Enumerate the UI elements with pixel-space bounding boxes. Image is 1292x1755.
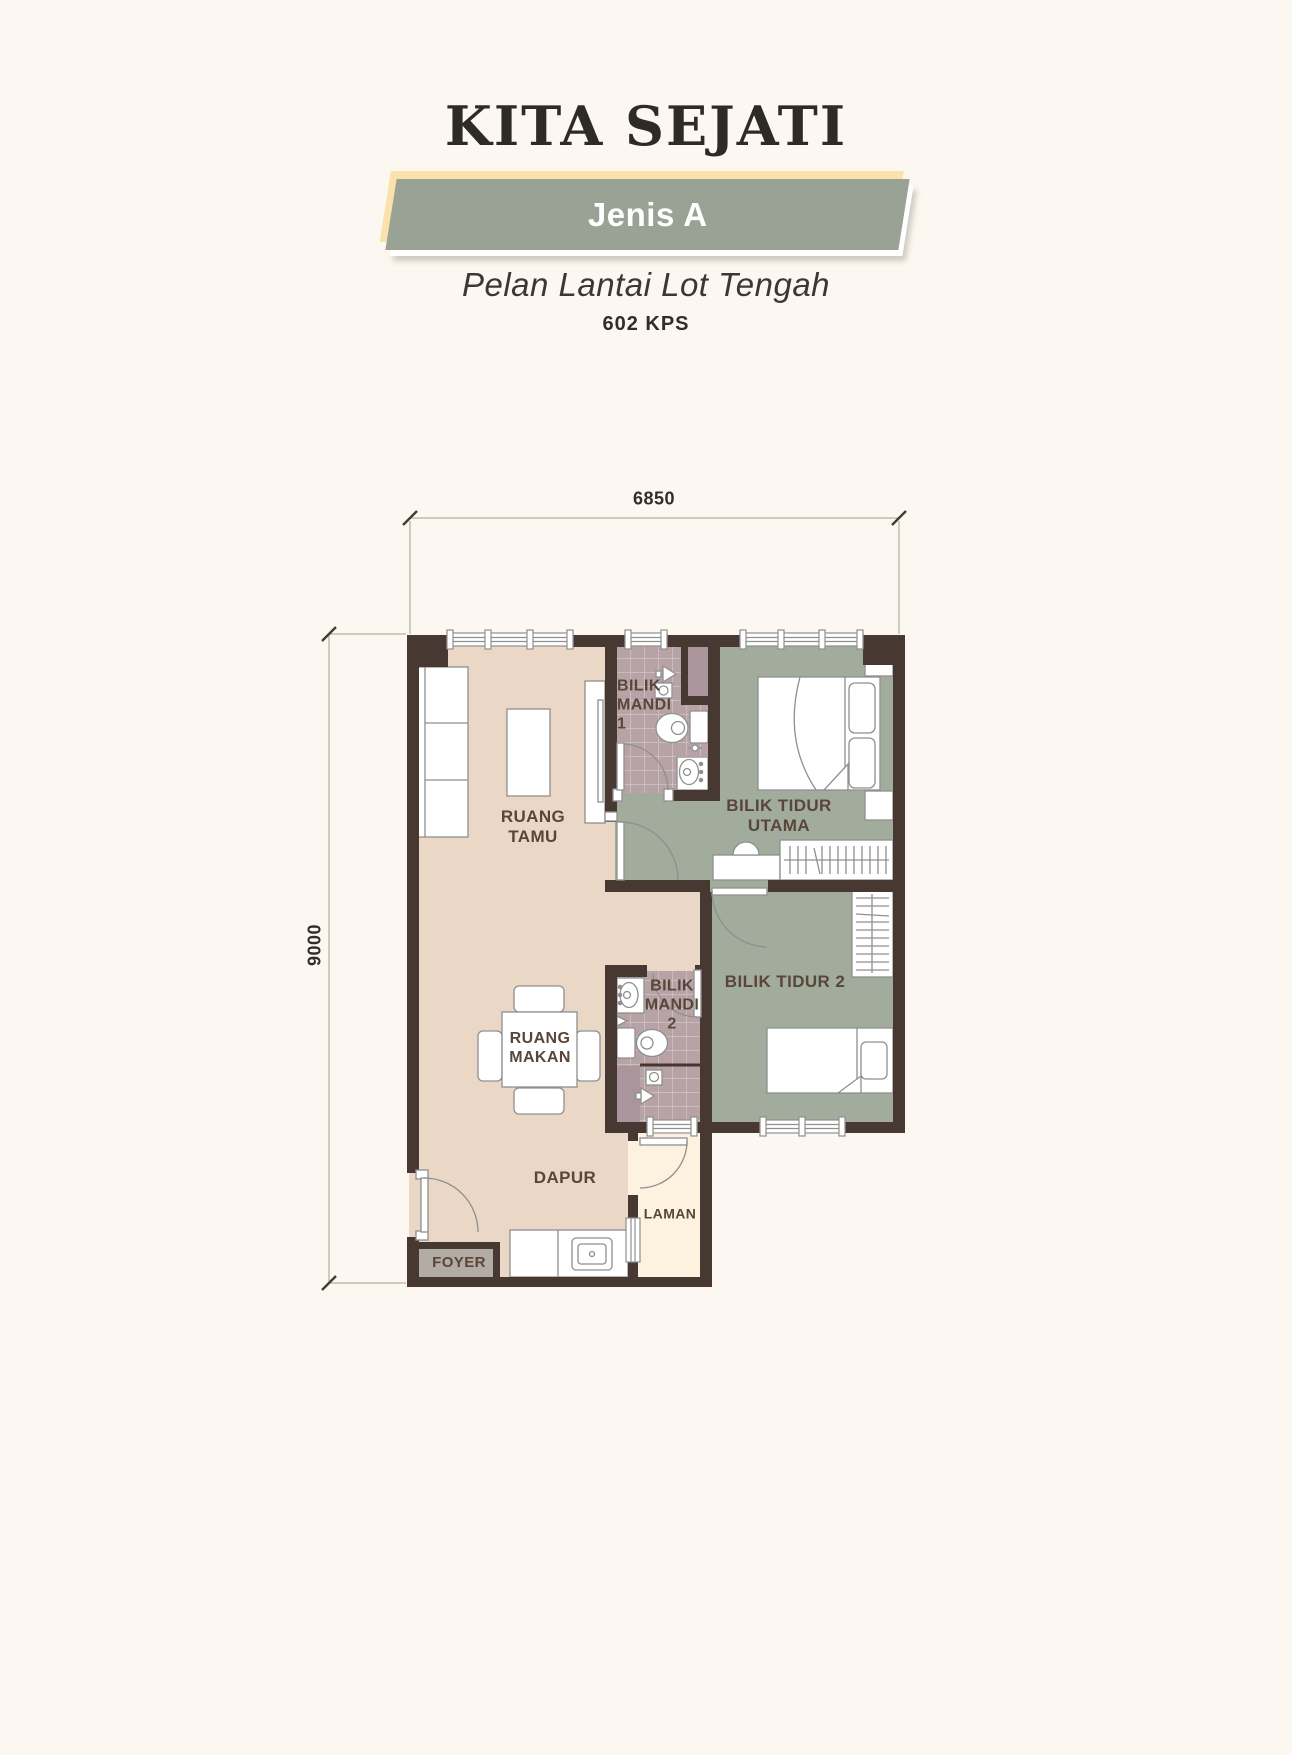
pillow (849, 738, 875, 788)
wall-bed2-left (700, 892, 712, 1287)
window-master (740, 633, 863, 646)
door-leaf-master (617, 822, 624, 880)
wall-laman-left (628, 1133, 638, 1141)
floor-laman-threshold (628, 1141, 638, 1195)
window-mullion (661, 630, 667, 649)
door-leaf-entrance (421, 1178, 428, 1232)
floor-plan (0, 0, 1292, 1755)
sink-drain-icon (684, 769, 691, 776)
window-mullion (485, 630, 491, 649)
dining-chair-top (514, 986, 564, 1012)
toilet-flush2-circle (641, 1037, 653, 1049)
window-mullion (799, 1117, 805, 1136)
toilet-flush-circle (672, 722, 685, 735)
dining-chair-right (576, 1031, 600, 1081)
door-leaf-bath1 (617, 743, 624, 790)
toilet-cistern (690, 711, 708, 743)
window-mullion (447, 630, 453, 649)
window-kitchen-laman (626, 1218, 640, 1262)
dimension-height: 9000 (305, 924, 326, 966)
label-foyer: FOYER (432, 1254, 486, 1272)
window-mullion (778, 630, 784, 649)
dining-chair-bottom (514, 1088, 564, 1114)
window-mullion (647, 1117, 653, 1136)
label-bilik-mandi-1: BILIK MANDI 1 (617, 678, 671, 735)
bidet-spray-icon (692, 745, 698, 751)
window-mullion (567, 630, 573, 649)
wall-bath2-left (605, 965, 617, 1133)
wall-shaft1-bottom (681, 696, 720, 705)
wall-bedroom-divider (605, 880, 710, 892)
wall-foyer-right (493, 1242, 500, 1287)
door-leaf-laman (640, 1138, 687, 1145)
window-mullion (625, 630, 631, 649)
floor-drain2-circle (650, 1073, 659, 1082)
toilet-cistern2 (617, 1028, 635, 1058)
wall-bath1-right (708, 635, 720, 801)
window-mullion (857, 630, 863, 649)
label-ruang-tamu: RUANG TAMU (501, 807, 565, 847)
label-bilik-mandi-2: BILIK MANDI 2 (645, 978, 699, 1035)
label-bilik-tidur-2: BILIK TIDUR 2 (725, 972, 845, 992)
floor-corridor (600, 883, 712, 977)
dressing-table (713, 855, 780, 880)
shower-valve-icon (656, 671, 661, 677)
wall-foyer-top (407, 1242, 500, 1249)
wall-bedroom-divider (768, 880, 893, 892)
wall-bottom (407, 1277, 710, 1287)
door-leaf-bed2 (712, 888, 767, 895)
label-ruang-makan: RUANG MAKAN (509, 1030, 571, 1068)
window-mullion (740, 630, 746, 649)
wall-top (573, 635, 627, 647)
wall-laman-left (628, 1262, 638, 1287)
dimension-width: 6850 (633, 489, 675, 510)
window-mullion (691, 1117, 697, 1136)
door-jamb (605, 812, 617, 821)
pillow (849, 683, 875, 733)
window-mullion (527, 630, 533, 649)
door-jamb (664, 789, 673, 801)
shower-valve2-icon (636, 1093, 641, 1099)
nightstand-bottom (865, 791, 893, 820)
wall-shaft1-left (681, 647, 688, 703)
coffee-table (507, 709, 550, 796)
window-mullion (760, 1117, 766, 1136)
wall-laman-left (628, 1195, 638, 1218)
tv (598, 700, 603, 802)
wall-bed2-bottom (845, 1122, 905, 1133)
dining-chair-left (478, 1031, 502, 1081)
window-bath2 (647, 1120, 697, 1133)
label-laman: LAMAN (644, 1206, 697, 1223)
sink-drain-dot (590, 1252, 595, 1257)
label-bilik-tidur-utama: BILIK TIDUR UTAMA (726, 796, 831, 836)
wall-left (407, 635, 419, 1173)
pillow2 (861, 1042, 887, 1079)
label-dapur: DAPUR (534, 1168, 596, 1188)
window-mullion (819, 630, 825, 649)
floor-laman (634, 1128, 704, 1281)
window-mullion (839, 1117, 845, 1136)
wall-top (667, 635, 740, 647)
window-living (447, 633, 573, 646)
sink-drain2-icon (624, 992, 631, 999)
door-jamb (613, 789, 622, 801)
wall-right (893, 635, 905, 1133)
